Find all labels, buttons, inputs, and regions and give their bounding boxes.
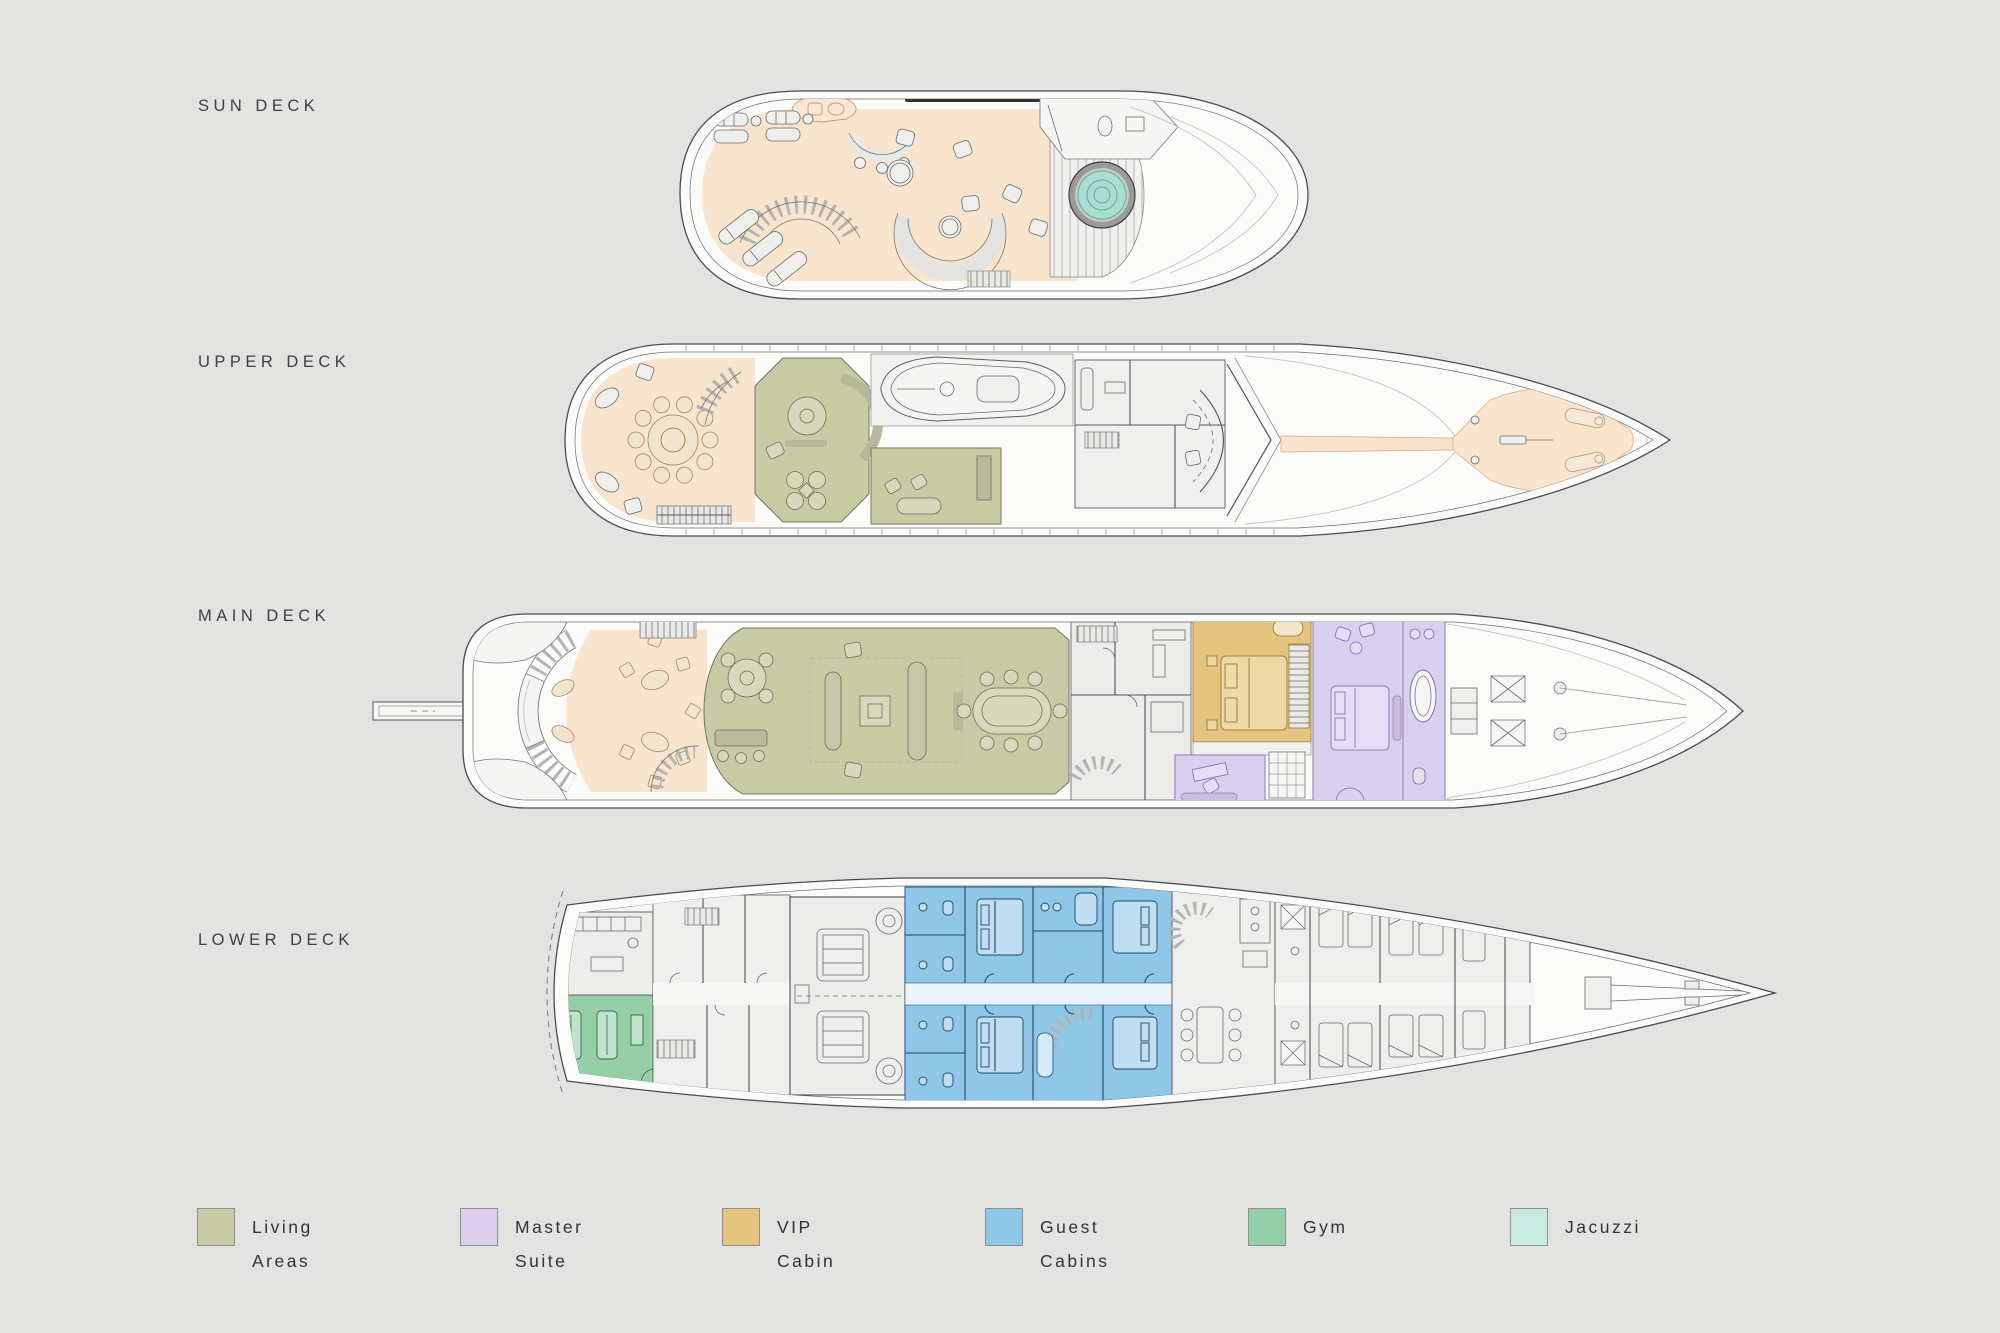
yacht-deck-plans: SUN DECK UPPER DECK MAIN DECK LOWER DECK (0, 0, 2000, 1333)
guest-bed (1113, 1017, 1157, 1069)
bunk (1419, 1015, 1443, 1057)
master-suite (1313, 614, 1445, 802)
upper-study (871, 448, 1001, 524)
living-areas-swatch (197, 1208, 235, 1246)
legend-label-line: Guest (1040, 1210, 1109, 1244)
legend-item-gym: Gym (1248, 1208, 1347, 1246)
legend-item-living-areas: Living Areas (197, 1208, 313, 1278)
legend-item-master-suite: Master Suite (460, 1208, 583, 1278)
legend-item-guest-cabins: Guest Cabins (985, 1208, 1109, 1278)
service-lobby-galley (1071, 622, 1191, 800)
legend-label-line: Jacuzzi (1565, 1210, 1641, 1244)
vip-cabin-swatch (722, 1208, 760, 1246)
bunk (1348, 1023, 1372, 1067)
shower-stall (1281, 1041, 1305, 1065)
guest-cabins-swatch (985, 1208, 1023, 1246)
games-table (721, 653, 773, 703)
legend-label-line: Gym (1303, 1210, 1347, 1244)
jacuzzi (1069, 162, 1135, 228)
main-salon (704, 628, 1069, 794)
legend-label-line: Suite (515, 1244, 583, 1278)
legend-item-jacuzzi: Jacuzzi (1510, 1208, 1641, 1246)
legend-label-line: Cabin (777, 1244, 835, 1278)
deck-hatch (1491, 720, 1525, 746)
legend-label-line: Living (252, 1210, 313, 1244)
jacuzzi-swatch (1510, 1208, 1548, 1246)
master-suite-swatch (460, 1208, 498, 1246)
shower-stall (1281, 905, 1305, 929)
bunk (1319, 1023, 1343, 1067)
upper-aft-deck (581, 358, 755, 524)
legend-label-line: Cabins (1040, 1244, 1109, 1278)
aft-stair-straight (657, 506, 731, 524)
lower-deck-plan (445, 865, 1790, 1165)
tender-outline (792, 96, 856, 122)
deck-hatch (1491, 676, 1525, 702)
bar-console (1040, 97, 1178, 159)
tender-garage (871, 354, 1073, 426)
lower-deck-label: LOWER DECK (198, 931, 354, 950)
legend: Living Areas Master Suite VIP Cabin Gues… (0, 1208, 2000, 1298)
legend-label-line: Areas (252, 1244, 313, 1278)
study (1175, 755, 1265, 802)
legend-label-line: Master (515, 1210, 583, 1244)
aft-stair-pad (968, 271, 1010, 287)
guest-bed (1113, 901, 1157, 953)
legend-item-vip-cabin: VIP Cabin (722, 1208, 835, 1278)
main-deck-plan (355, 600, 1750, 820)
bunk (1463, 1011, 1485, 1049)
main-deck-label: MAIN DECK (198, 607, 330, 626)
bunk (1389, 1015, 1413, 1057)
sun-deck-label: SUN DECK (198, 97, 319, 116)
upper-deck-plan (545, 330, 1690, 545)
crew-corridor-zone (653, 895, 790, 1095)
guest-bed (977, 1017, 1023, 1073)
engine-room (790, 897, 905, 1095)
vip-cabin (1193, 614, 1311, 742)
sky-lounge (755, 358, 878, 522)
skylight-grid (1269, 752, 1305, 798)
gym-swatch (1248, 1208, 1286, 1246)
legend-label-line: VIP (777, 1210, 835, 1244)
upper-deck-label: UPPER DECK (198, 353, 350, 372)
passerelle (373, 702, 471, 720)
guest-bed (977, 899, 1023, 955)
sun-deck-plan (650, 75, 1330, 315)
guest-cabins (905, 887, 1172, 1105)
crew-mess (1172, 889, 1275, 1103)
